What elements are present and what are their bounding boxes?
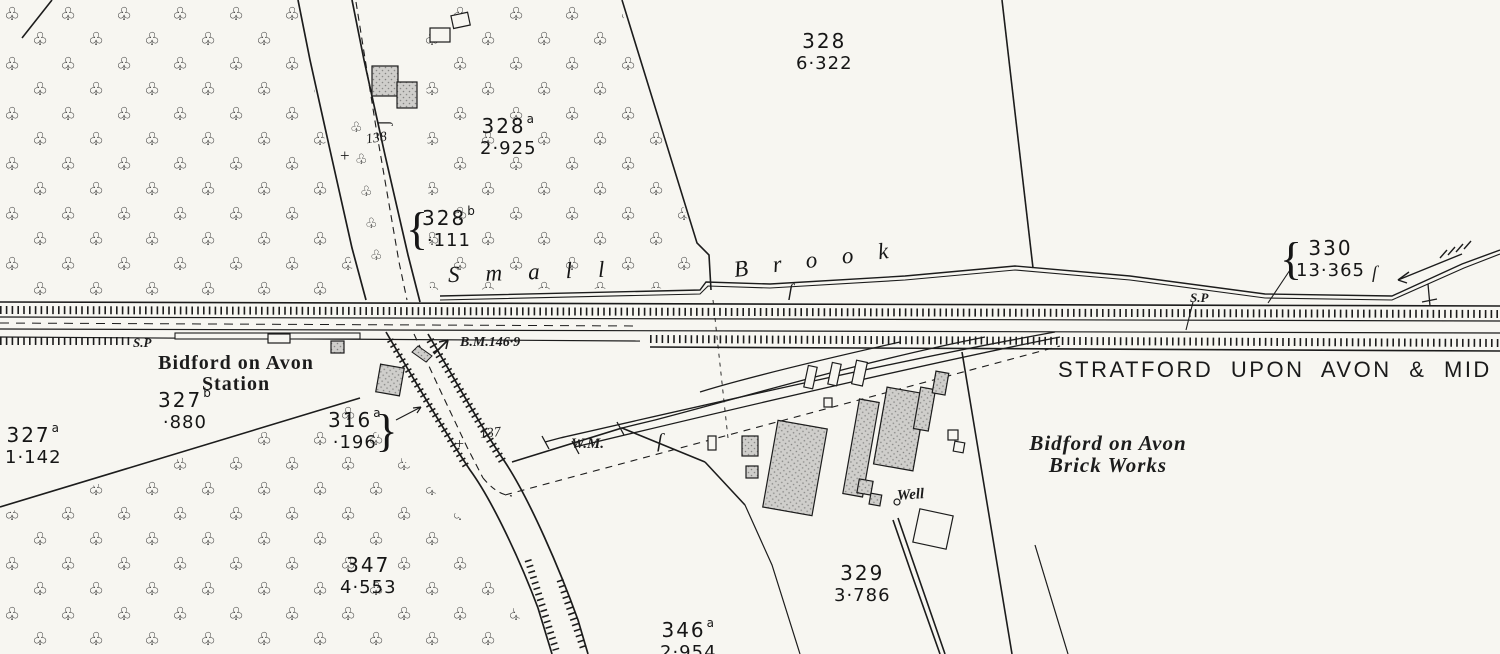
parcel-number: 328 — [422, 206, 466, 230]
station-building — [376, 364, 404, 396]
parcel-327a: 327a 1·142 — [5, 423, 62, 468]
signal-post-right-label: S.P — [1190, 291, 1208, 305]
map-linework: ♧ ♧ — [0, 0, 1500, 654]
railway-name-label: STRATFORD UPON AVON & MID — [1058, 358, 1492, 381]
parcel-suffix: b — [467, 204, 477, 218]
parcel-suffix: a — [52, 421, 61, 435]
parcel-brace: { — [406, 202, 428, 255]
parcel-area: 2·925 — [480, 138, 537, 159]
building — [268, 334, 290, 343]
building — [397, 82, 417, 108]
parcel-suffix: a — [707, 616, 716, 630]
parcel-316a-leader — [396, 407, 421, 420]
parcel-316a: } 316a ·196 — [328, 408, 382, 453]
boundary-cross-icon: + — [340, 146, 350, 166]
building — [804, 365, 817, 388]
brick-works-label: Bidford on Avon Brick Works — [1008, 432, 1208, 476]
parcel-suffix: b — [203, 386, 213, 400]
map-canvas: ♧ ♧ — [0, 0, 1500, 654]
railway-line — [0, 302, 1500, 351]
parcel-number: 330 — [1308, 236, 1352, 260]
weighing-machine-label: W.M. — [571, 437, 604, 453]
parcel-330: { 330 13·365 — [1296, 236, 1365, 281]
building — [953, 441, 965, 453]
well-house-building — [913, 509, 953, 549]
parcel-328b: { 328b ·111 — [422, 206, 476, 251]
building — [948, 430, 958, 440]
parcel-number: 327 — [6, 423, 50, 447]
building — [869, 493, 882, 506]
parcel-area: 6·322 — [796, 53, 853, 74]
station-name-line1: Bidford on Avon — [150, 353, 322, 374]
building — [742, 436, 758, 456]
signal-post-leader — [1186, 302, 1193, 330]
post-icon — [1422, 284, 1437, 306]
boundary-cross-icon: + — [455, 436, 464, 454]
signal-post-left-label: S.P — [133, 336, 151, 350]
parcel-328a: 328a 2·925 — [480, 114, 537, 159]
mereing-mark-icon: ſ — [1372, 262, 1377, 283]
parcel-area: ·111 — [422, 230, 476, 251]
parcel-346a: 346a 2·954 — [660, 618, 717, 654]
parcel-347: 347 4·553 — [340, 553, 397, 598]
parcel-329: 329 3·786 — [834, 561, 891, 606]
culvert-hatch — [412, 346, 432, 362]
brickworks-building — [763, 420, 828, 515]
parcel-area: 1·142 — [5, 447, 62, 468]
boundary-mark-137: 137 — [479, 426, 501, 443]
parcel-area: ·196 — [328, 432, 382, 453]
parcel-area: ·880 — [158, 412, 212, 433]
parcel-number: 328 — [802, 29, 846, 53]
parcel-suffix: a — [527, 112, 536, 126]
station-building — [331, 341, 344, 353]
parcel-327b: 327b ·880 — [158, 388, 212, 433]
brick-works-line2: Brick Works — [1008, 454, 1208, 476]
parcel-number: 327 — [158, 388, 202, 412]
parcel-number: 328 — [481, 114, 525, 138]
mereing-mark-icon: ſ — [788, 280, 793, 301]
parcel-area: 4·553 — [340, 577, 397, 598]
parcel-area: 3·786 — [834, 585, 891, 606]
tree-icon: ♧ — [360, 184, 373, 200]
building — [372, 66, 398, 96]
parcel-number: 329 — [840, 561, 884, 585]
parcel-number: 346 — [661, 618, 705, 642]
well-label: Well — [896, 487, 924, 505]
tree-icon: ♧ — [355, 152, 368, 168]
tree-icon: ♧ — [350, 120, 363, 136]
parcel-suffix: a — [373, 406, 382, 420]
building — [852, 360, 868, 386]
building — [824, 398, 832, 407]
building — [746, 466, 758, 478]
building — [828, 362, 841, 385]
brick-works-line1: Bidford on Avon — [1008, 432, 1208, 454]
benchmark-label: B.M.146·9 — [460, 336, 520, 351]
tree-icon: ♧ — [365, 216, 378, 232]
parcel-number: 316 — [328, 408, 372, 432]
boundary-mark-138: 138 — [365, 131, 388, 148]
parcel-328: 328 6·322 — [796, 29, 853, 74]
building — [430, 28, 450, 42]
mereing-mark-icon: ſ — [657, 430, 663, 453]
building — [708, 436, 716, 450]
brickworks-building — [932, 371, 949, 395]
parcel-number: 347 — [346, 553, 390, 577]
tree-icon: ♧ — [370, 248, 383, 264]
parcel-area: 13·365 — [1296, 260, 1365, 281]
parcel-brace: { — [1280, 232, 1302, 285]
building — [451, 12, 470, 28]
parcel-area: 2·954 — [660, 642, 717, 654]
